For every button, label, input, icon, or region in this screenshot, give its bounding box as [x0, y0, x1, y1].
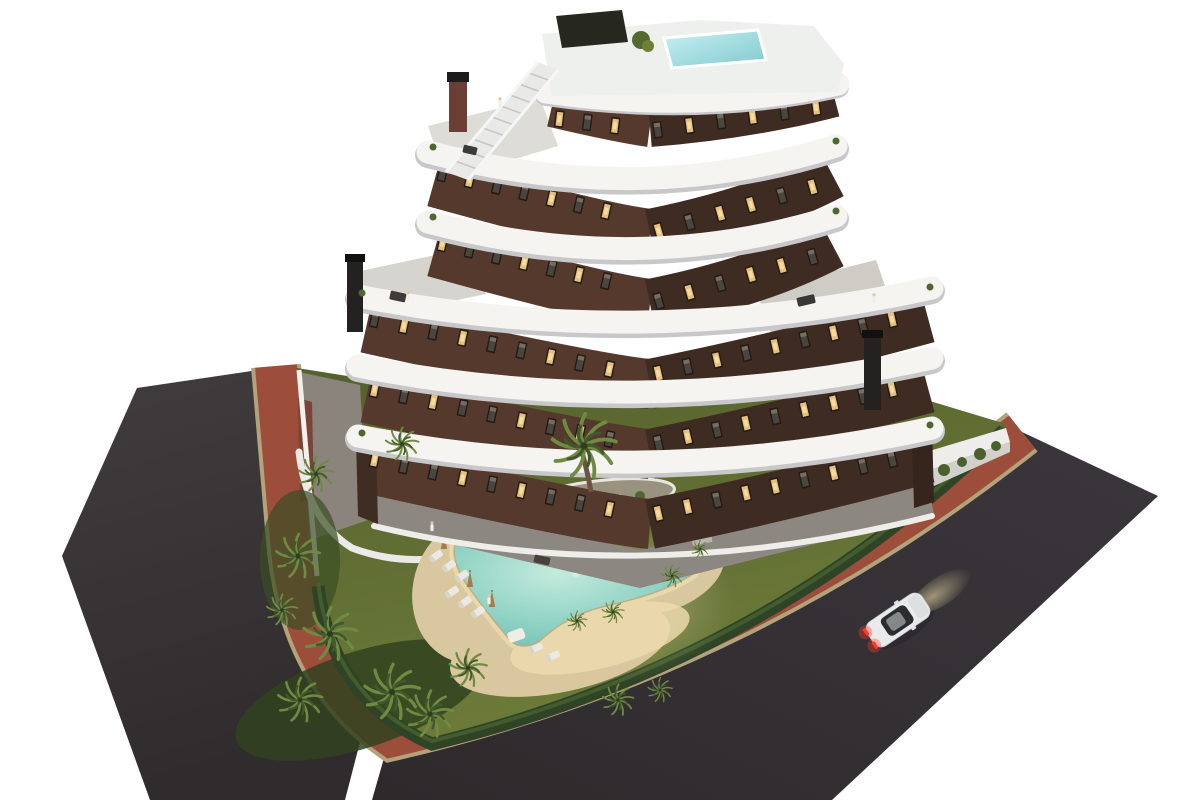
rooftop-plunge-pool	[664, 30, 766, 68]
architectural-render-image	[0, 0, 1200, 800]
rooftop-pergola	[556, 10, 628, 48]
